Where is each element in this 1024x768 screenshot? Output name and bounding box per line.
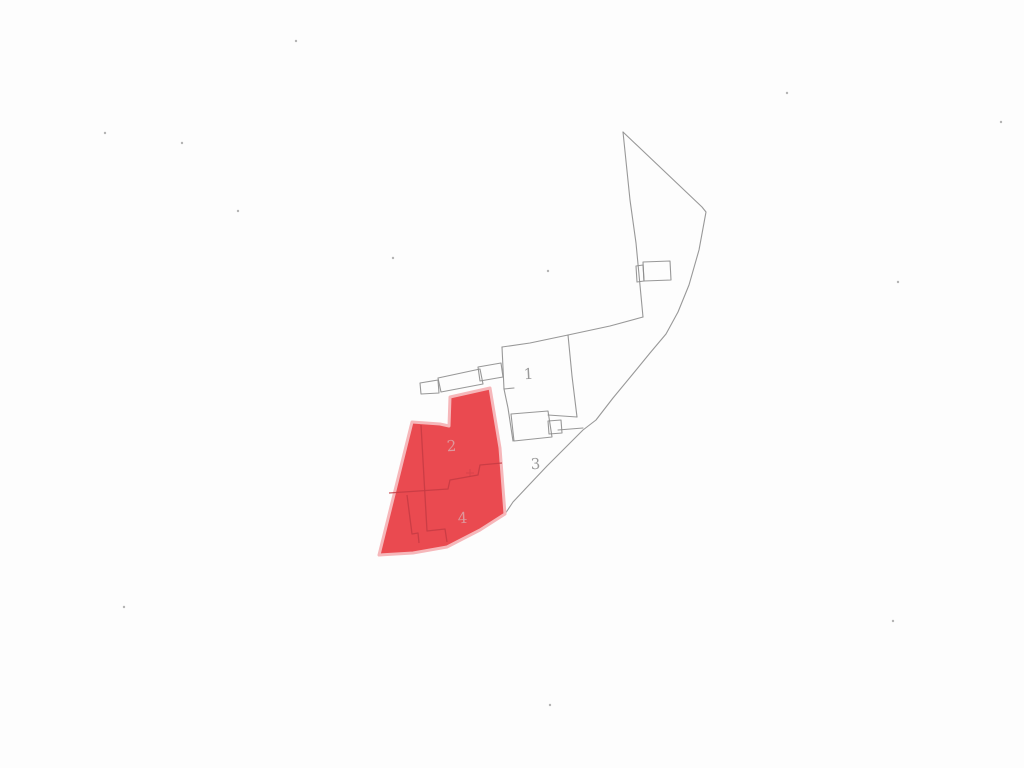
scan-noise-speck [786,92,788,94]
scan-noise-speck [295,40,297,42]
scan-noise-speck [181,142,183,144]
parcel1-right-edge-line [568,335,577,417]
parcel-label-4: 4 [457,509,468,528]
parcel1-bottom-edge-line [548,415,577,417]
lower-building-rect-line [511,411,552,441]
mid-building-tab-line [420,380,439,394]
scan-noise-speck [392,257,394,259]
outer-boundary-left-line [623,132,643,317]
parcel-plan-drawing: 1234 [0,0,1024,768]
scan-noise-speck [897,281,899,283]
scan-noise-speck [1000,121,1002,123]
block-left-edge-line [502,347,513,441]
parcel-label-2: 2 [446,437,457,456]
left-edge-tick-line [504,388,514,389]
scanned-plan-page: 1234 [0,0,1024,768]
scan-noise-speck [104,132,106,134]
parcel-label-3: 3 [530,455,541,474]
scan-noise-speck [123,606,125,608]
mid-building-rect-line [438,369,483,392]
upper-building-rect-line [643,261,671,281]
scan-noise-speck [237,210,239,212]
scan-noise-speck [547,270,549,272]
block-top-line-line [502,317,643,347]
parcel-label-1: 1 [523,365,534,384]
scan-noise-speck [549,704,551,706]
scan-noise-speck [892,620,894,622]
